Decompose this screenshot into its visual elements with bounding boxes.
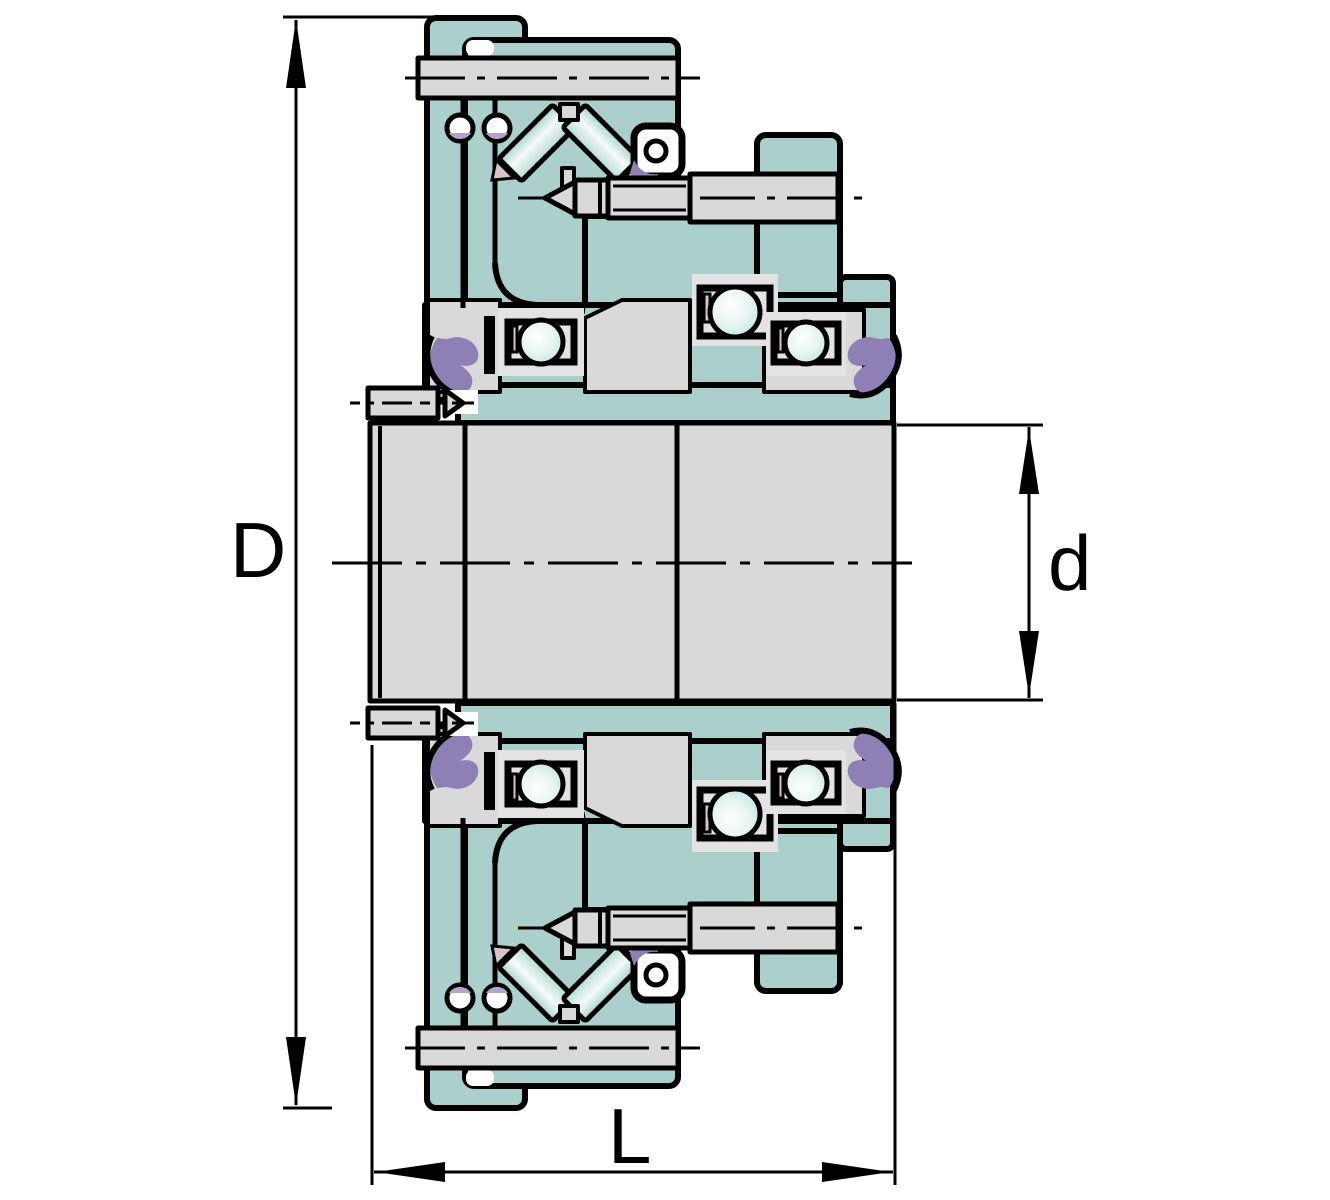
spacer-bar bbox=[484, 316, 495, 374]
dimension-L-label: L bbox=[608, 1092, 651, 1180]
bearing-unit-cross-section: D d L bbox=[0, 0, 1330, 1200]
dimension-d-label: d bbox=[1048, 519, 1091, 607]
set-screw bbox=[350, 388, 478, 418]
ball-bearing-small-right bbox=[766, 312, 846, 376]
dimension-D-label: D bbox=[230, 506, 286, 594]
shaft bbox=[332, 423, 912, 701]
ball-bearing-large-middle bbox=[692, 274, 778, 346]
drawing-canvas: D d L bbox=[0, 0, 1330, 1200]
ball-bearing-small-left bbox=[498, 308, 584, 376]
